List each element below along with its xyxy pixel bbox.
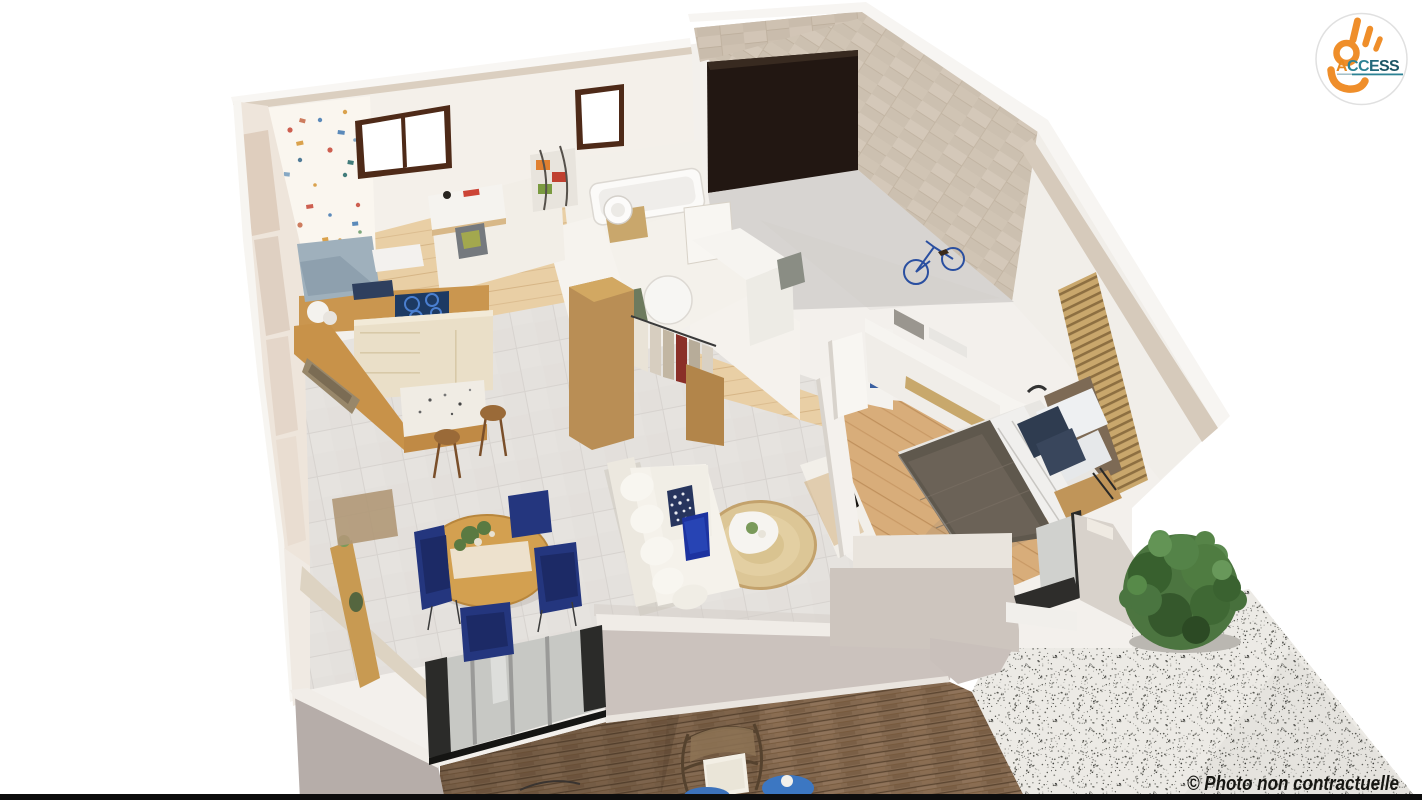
svg-text:S: S <box>1389 58 1400 75</box>
svg-text:© Photo non contractuelle: © Photo non contractuelle <box>1187 773 1399 795</box>
